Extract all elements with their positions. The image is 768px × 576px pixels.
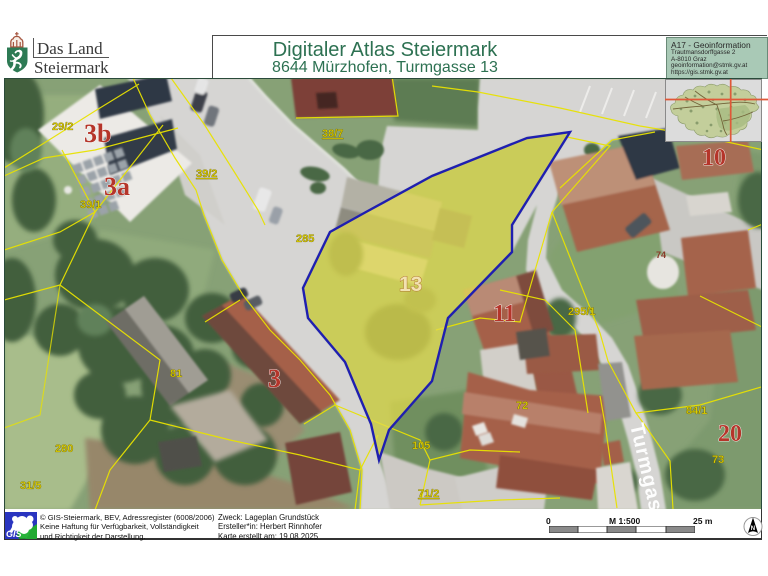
svg-text:31/5: 31/5 (20, 480, 41, 492)
svg-text:285: 285 (296, 233, 314, 245)
svg-text:10: 10 (702, 145, 726, 171)
svg-text:81: 81 (170, 368, 182, 380)
svg-text:39/1: 39/1 (80, 199, 101, 211)
svg-text:39/2: 39/2 (196, 168, 217, 180)
svg-text:73: 73 (712, 454, 724, 466)
svg-text:13: 13 (399, 273, 422, 296)
svg-text:N: N (751, 526, 755, 532)
svg-text:72: 72 (516, 400, 528, 412)
svg-text:105: 105 (412, 440, 430, 452)
svg-text:GIS: GIS (6, 529, 22, 539)
svg-text:3b: 3b (84, 119, 111, 148)
svg-text:74: 74 (656, 250, 666, 260)
svg-text:280: 280 (55, 443, 73, 455)
svg-text:3: 3 (268, 364, 281, 393)
svg-text:38/7: 38/7 (322, 128, 343, 140)
svg-text:71/2: 71/2 (418, 488, 439, 500)
svg-text:11: 11 (493, 301, 516, 327)
svg-text:84/1: 84/1 (686, 405, 707, 417)
svg-text:3a: 3a (104, 172, 130, 201)
svg-text:29/2: 29/2 (52, 121, 73, 133)
svg-text:295/1: 295/1 (568, 306, 596, 318)
svg-text:20: 20 (718, 421, 742, 447)
